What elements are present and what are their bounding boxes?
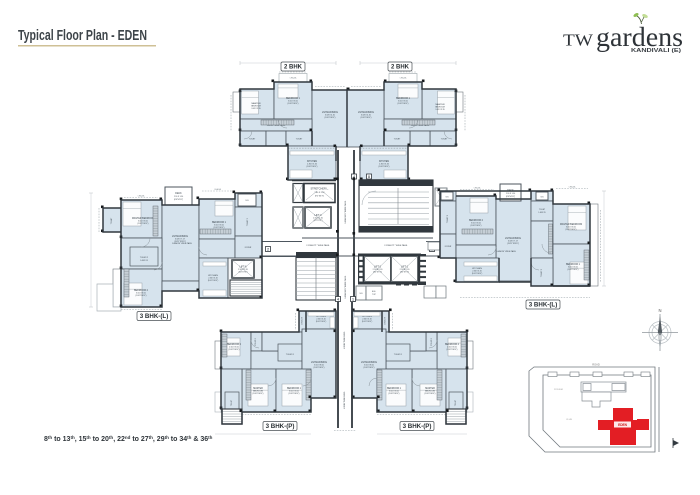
svg-text:2.15M/07'1" WIDE PASS.: 2.15M/07'1" WIDE PASS. [384,244,408,247]
svg-text:2: 2 [267,247,269,251]
svg-text:LOBBY WIDE PASS.: LOBBY WIDE PASS. [343,331,346,349]
svg-text:1: 1 [352,297,354,301]
svg-text:(10'0"X10'0"): (10'0"X10'0") [307,166,318,168]
svg-text:LIVING/DINING: LIVING/DINING [358,112,374,114]
svg-text:(10'0"X10'0"): (10'0"X10'0") [362,321,373,323]
svg-text:BEDROOM 1: BEDROOM 1 [212,222,227,224]
svg-text:TOILET-3: TOILET-3 [447,215,449,223]
svg-text:2.59 X 1.50: 2.59 X 1.50 [506,193,515,195]
svg-text:MASTER: MASTER [253,387,263,390]
svg-text:TOILET: TOILET [441,139,448,141]
svg-text:(10'0"X10'0"): (10'0"X10'0") [471,225,482,227]
svg-text:BEDROOM 2: BEDROOM 2 [469,220,484,222]
svg-text:MASTER BEDROOM: MASTER BEDROOM [132,217,154,220]
svg-text:3.05M/10'0" WIDE PASS.: 3.05M/10'0" WIDE PASS. [344,200,347,224]
svg-text:TOILET: TOILET [394,139,401,141]
svg-text:(10'0"X10'0"): (10'0"X10'0") [253,393,264,395]
svg-text:(10'0"X10'0"): (10'0"X10'0") [214,227,225,229]
svg-text:2 BHK: 2 BHK [284,65,303,71]
svg-text:3.05 X 3.35: 3.05 X 3.35 [251,108,260,110]
svg-text:(10'0"X10'0"): (10'0"X10'0") [316,321,327,323]
svg-text:BEDROOM 1: BEDROOM 1 [566,264,581,266]
svg-text:3.05 X 3.35: 3.05 X 3.35 [435,109,444,111]
svg-text:BEDROOM 4: BEDROOM 4 [445,344,460,346]
svg-text:BEDROOM 4: BEDROOM 4 [227,344,242,346]
svg-text:1.40X2.15: 1.40X2.15 [140,260,148,262]
svg-text:TW: TW [563,31,594,50]
svg-text:(8'2"X7'3"): (8'2"X7'3") [314,220,323,222]
svg-text:TOILET-3: TOILET-3 [255,338,257,345]
svg-text:CHAJJA: CHAJJA [138,195,146,198]
svg-text:2 BHK: 2 BHK [391,65,410,71]
svg-text:3 BHK-(P): 3 BHK-(P) [403,423,432,430]
svg-text:(19'11"X23'6"): (19'11"X23'6") [507,243,519,245]
svg-text:(10'0"X10'0"): (10'0"X10'0") [361,117,372,119]
svg-text:(10'0"X10'0"): (10'0"X10'0") [568,269,579,271]
svg-text:2.15M/07'1" WIDE PASS.: 2.15M/07'1" WIDE PASS. [306,244,330,247]
svg-text:(10'0"X10'0"): (10'0"X10'0") [364,367,375,369]
svg-text:KITCHEN: KITCHEN [379,161,389,163]
svg-text:KITCHEN: KITCHEN [208,275,218,277]
svg-text:BEDROOM 1: BEDROOM 1 [286,98,301,100]
svg-text:LIVING/DINING: LIVING/DINING [322,112,338,114]
svg-text:ELE.: ELE. [372,291,376,293]
svg-text:3 BHK-(L): 3 BHK-(L) [529,302,558,309]
svg-text:MASTER: MASTER [435,103,445,106]
svg-text:CLUB: CLUB [566,419,572,421]
svg-text:(8'2"X7'3"): (8'2"X7'3") [239,271,248,273]
svg-text:(10'0"X10'0"): (10'0"X10'0") [447,349,458,351]
svg-text:BEDROOM 1: BEDROOM 1 [387,388,402,390]
svg-text:(8'2"X7'3"): (8'2"X7'3") [373,271,382,273]
svg-text:(10'0"X10'0"): (10'0"X10'0") [208,280,219,282]
svg-text:(10'0"X10'0"): (10'0"X10'0") [398,103,409,105]
svg-text:(10'0"X10'0"): (10'0"X10'0") [379,166,390,168]
svg-text:N: N [658,308,661,313]
svg-text:(10'0"X10'0"): (10'0"X10'0") [389,393,400,395]
svg-text:LIVING/DINING: LIVING/DINING [172,236,188,238]
svg-text:BEDROOM 2: BEDROOM 2 [134,290,149,292]
svg-text:MASTER: MASTER [251,102,261,105]
svg-text:CHAJJA: CHAJJA [569,186,577,189]
svg-text:(10'0"X10'0"): (10'0"X10'0") [325,117,336,119]
svg-text:KITCHEN: KITCHEN [307,161,317,163]
svg-text:TOILET-1: TOILET-1 [394,354,402,356]
svg-text:LIFT-2: LIFT-2 [374,265,382,268]
svg-text:TOILET: TOILET [539,209,546,211]
svg-text:(10'0"X10'0"): (10'0"X10'0") [288,103,299,105]
svg-text:8: 8 [368,175,370,179]
svg-text:LOBBY WIDE PASS.: LOBBY WIDE PASS. [343,391,346,409]
svg-text:C/TOILET: C/TOILET [385,317,387,325]
svg-text:TOILET-3: TOILET-3 [431,338,433,345]
svg-text:FOYER: FOYER [245,247,252,249]
svg-text:(10'0"X10'0"): (10'0"X10'0") [314,367,325,369]
svg-text:STRETCHER L.: STRETCHER L. [310,188,328,191]
svg-text:1.06M/3'6" WIDE PASS.: 1.06M/3'6" WIDE PASS. [496,250,517,253]
svg-text:LIFT-6: LIFT-6 [240,265,248,268]
svg-text:2.59 X 1.50: 2.59 X 1.50 [174,196,183,198]
svg-text:CHAJJA: CHAJJA [474,187,482,190]
svg-text:1.06M/3'6" WIDE PASS.: 1.06M/3'6" WIDE PASS. [172,242,193,245]
svg-text:C/TOILET: C/TOILET [302,317,304,325]
svg-text:TOILET: TOILET [249,139,256,141]
svg-text:(10'0"X10'0"): (10'0"X10'0") [289,393,300,395]
svg-text:KITCHEN: KITCHEN [472,268,482,270]
svg-text:TOILET-1: TOILET-1 [247,218,249,226]
svg-text:(8'6"X4'11"): (8'6"X4'11") [506,196,516,198]
svg-text:(10'0"X10'0"): (10'0"X10'0") [229,349,240,351]
svg-text:TOILET-1: TOILET-1 [286,354,294,356]
svg-text:3 BHK-(P): 3 BHK-(P) [266,423,295,430]
svg-text:(10'0"X10'0"): (10'0"X10'0") [425,393,436,395]
svg-text:ROAD: ROAD [592,363,600,367]
svg-text:TOILET-2: TOILET-2 [140,257,148,259]
svg-text:TOILET: TOILET [111,217,113,224]
svg-text:3 BHK-(L): 3 BHK-(L) [140,313,169,320]
svg-text:(10'0"X10'0"): (10'0"X10'0") [472,273,483,275]
svg-text:LIFT-1: LIFT-1 [401,265,409,268]
svg-text:TOILET-2: TOILET-2 [541,269,543,277]
svg-text:LIVING/DINING: LIVING/DINING [311,362,327,364]
svg-text:Typical Floor Plan - EDEN: Typical Floor Plan - EDEN [18,27,147,44]
svg-text:LIVING/DINING: LIVING/DINING [505,238,521,240]
svg-text:BEDROOM 1: BEDROOM 1 [287,388,302,390]
svg-text:(10'0"X10'0"): (10'0"X10'0") [138,223,149,225]
svg-text:CHAJJA: CHAJJA [290,77,298,80]
svg-text:(10'0"X10'0"): (10'0"X10'0") [136,295,147,297]
svg-text:(8'6"X4'11"): (8'6"X4'11") [174,199,184,201]
svg-text:(8'2"X7'3"): (8'2"X7'3") [400,271,409,273]
svg-text:PODIUM: PODIUM [554,389,563,391]
svg-text:LIFT-3: LIFT-3 [315,214,323,217]
svg-text:CHAJJA: CHAJJA [400,77,408,80]
svg-text:EDEN: EDEN [618,423,628,427]
svg-text:(10'0"X10'0"): (10'0"X10'0") [566,229,577,231]
svg-text:(9'2"X6'7"): (9'2"X6'7") [315,195,325,197]
svg-text:DECK: DECK [175,193,182,195]
svg-text:MASTER: MASTER [425,387,435,390]
svg-text:TOILET: TOILET [231,399,233,406]
svg-text:1.40X2.15: 1.40X2.15 [538,212,545,214]
svg-text:BEDROOM 1: BEDROOM 1 [396,98,411,100]
svg-text:3.05M/10'0" WIDE PASS.: 3.05M/10'0" WIDE PASS. [344,275,347,299]
svg-text:LIVING/DINING: LIVING/DINING [361,362,377,364]
svg-text:TOILET: TOILET [455,399,457,406]
svg-text:CHAJJA: CHAJJA [214,188,222,191]
svg-text:TOILET: TOILET [296,139,303,141]
svg-text:4: 4 [337,297,339,301]
svg-text:MASTER BEDROOM: MASTER BEDROOM [560,223,582,226]
svg-text:FOYER: FOYER [445,246,452,248]
svg-text:KANDIVALI (E): KANDIVALI (E) [631,48,681,54]
